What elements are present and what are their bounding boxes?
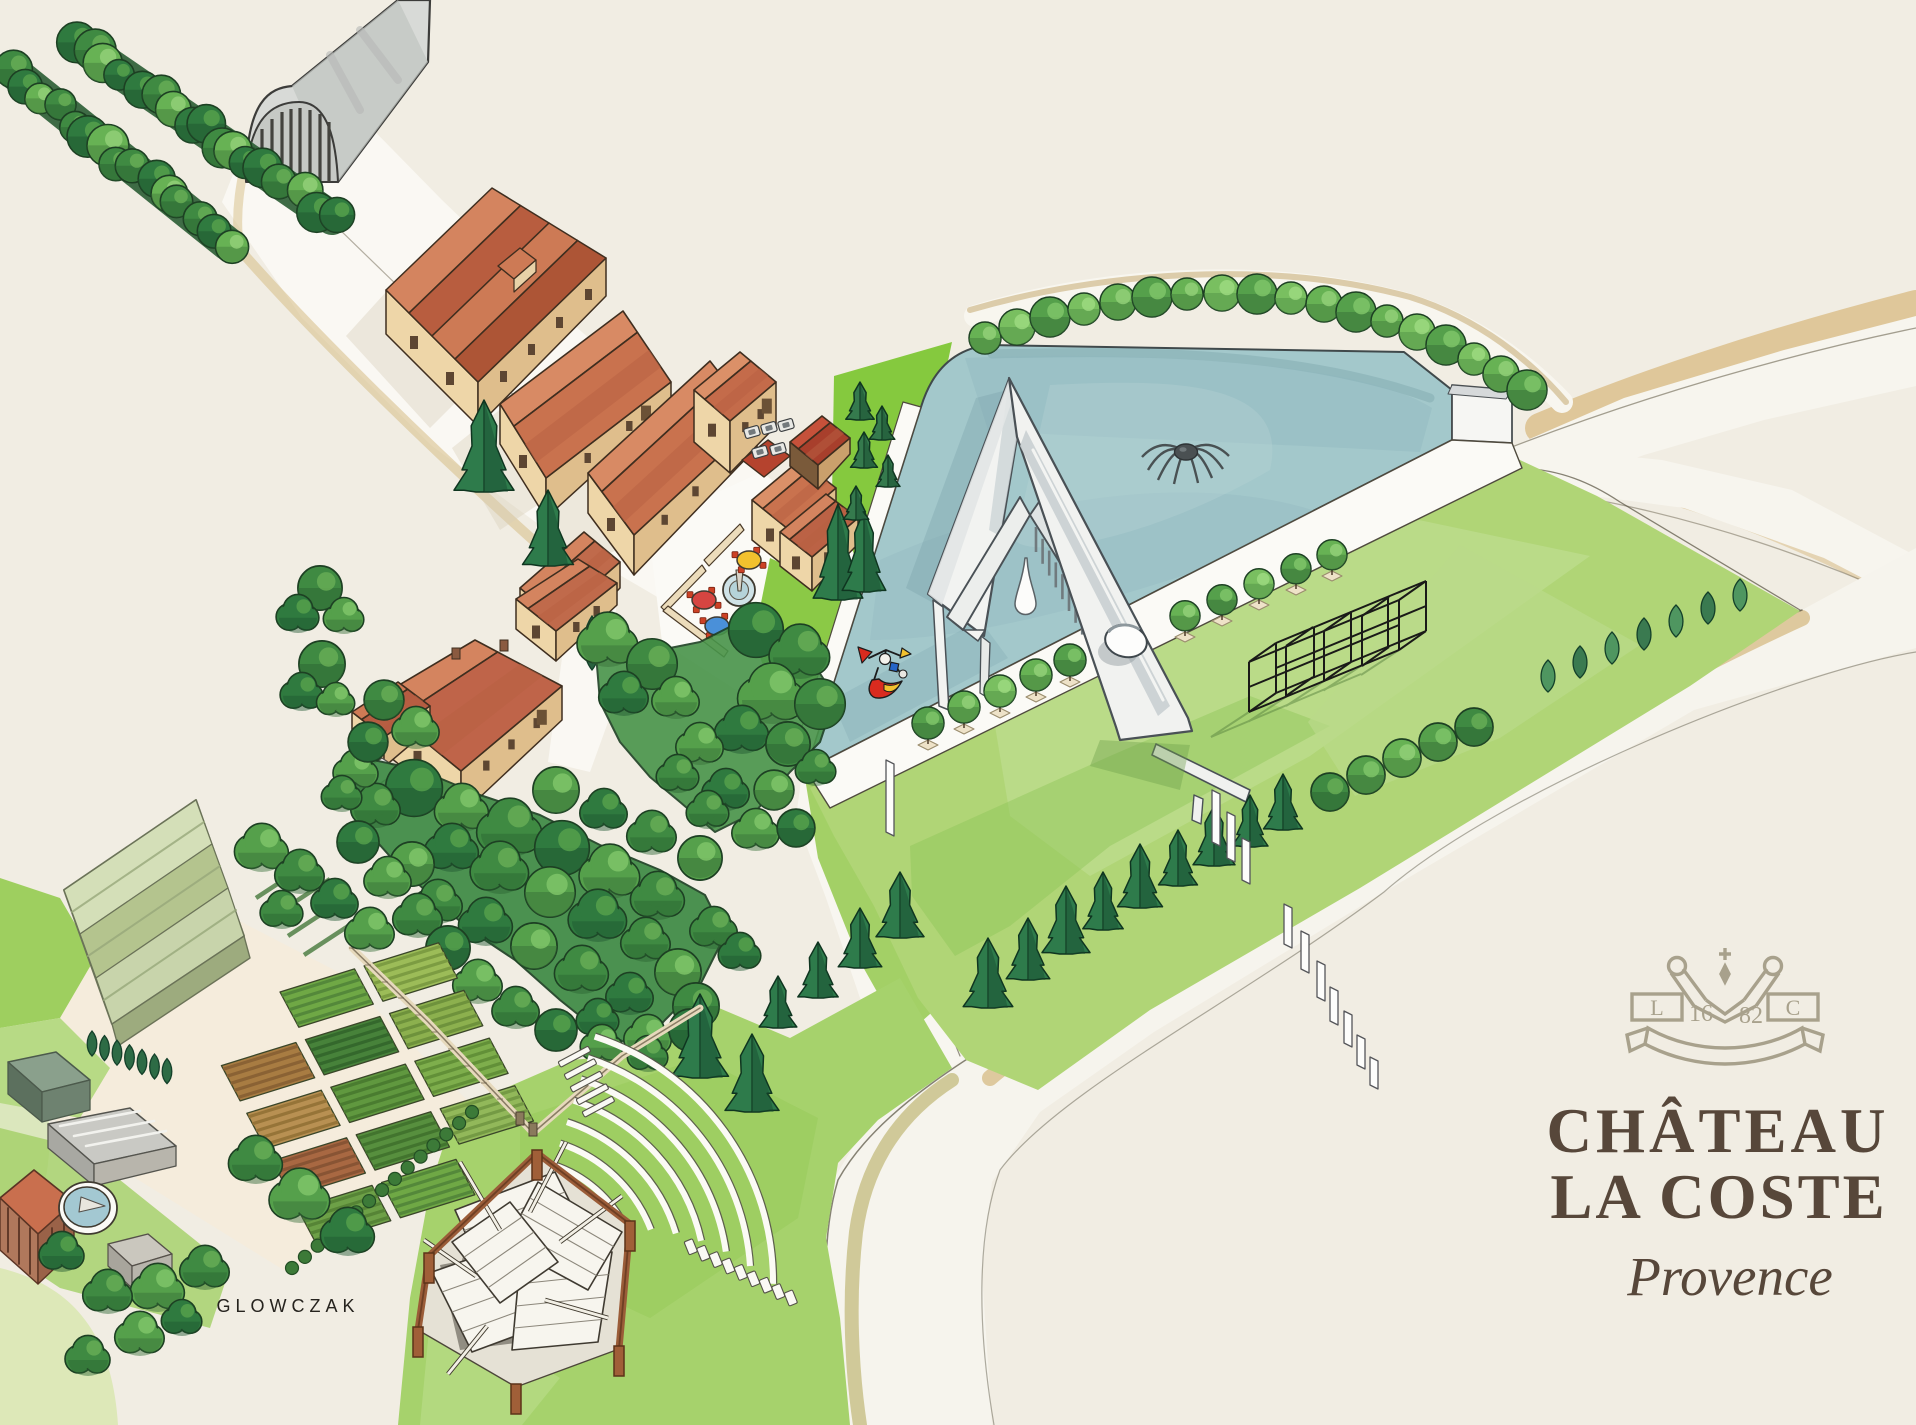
svg-text:CHÂTEAU: CHÂTEAU xyxy=(1546,1096,1889,1166)
svg-text:GLOWCZAK: GLOWCZAK xyxy=(216,1296,359,1316)
svg-text:C: C xyxy=(1786,995,1801,1020)
svg-text:LA COSTE: LA COSTE xyxy=(1550,1162,1887,1232)
svg-text:16: 16 xyxy=(1689,1001,1713,1027)
svg-text:L: L xyxy=(1650,995,1663,1020)
svg-text:82: 82 xyxy=(1739,1003,1763,1029)
svg-text:Provence: Provence xyxy=(1626,1246,1833,1307)
